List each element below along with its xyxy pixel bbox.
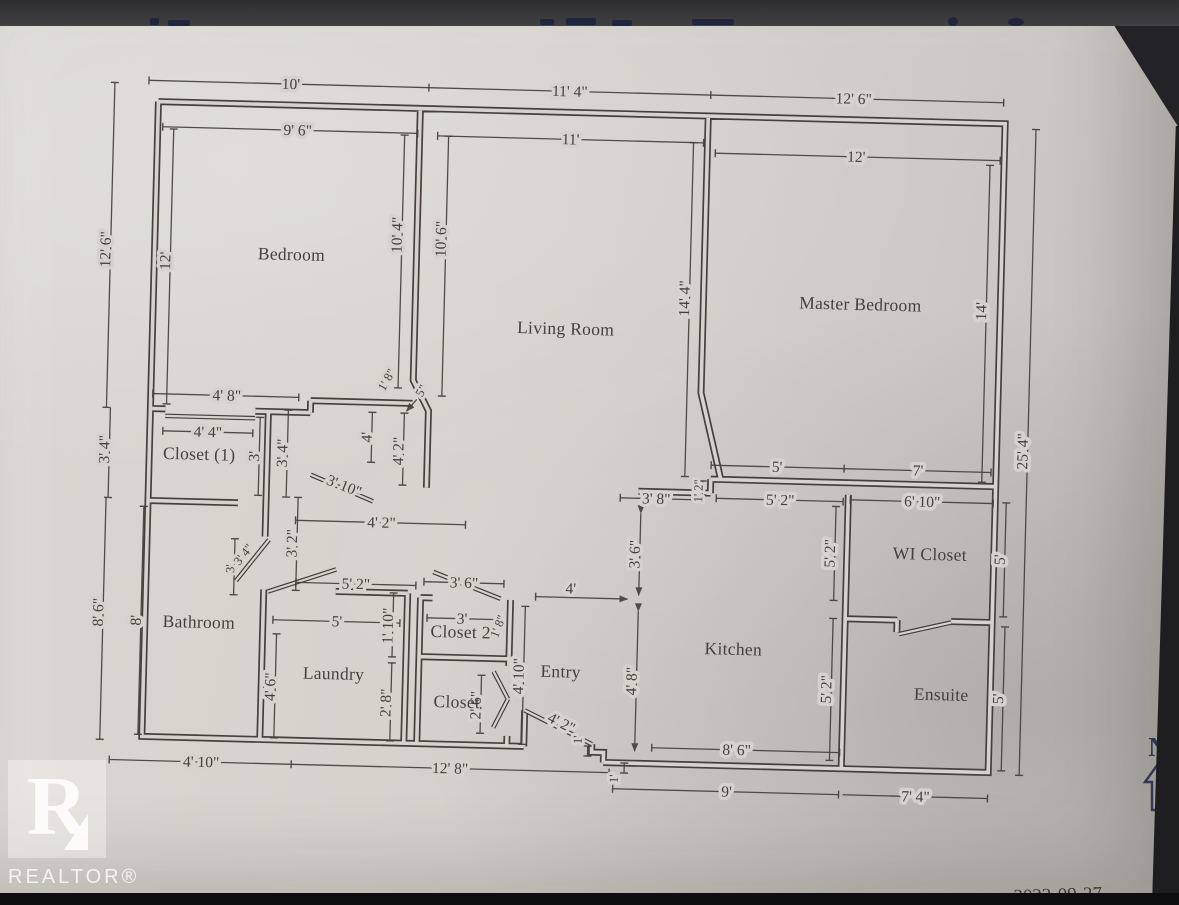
dimension-labels: 10' 11' 4" 12' 6" 9' 6" 11' 12' 12' 6" 3… bbox=[84, 71, 1041, 808]
dim-master-width: 12' bbox=[847, 149, 866, 166]
dim-entry-height: 4' 10" bbox=[510, 658, 528, 695]
cropped-title-fragment bbox=[566, 18, 596, 25]
dim-bathroom-height: 8' bbox=[128, 614, 145, 625]
room-label-closet-2: Closet 2 bbox=[430, 621, 491, 643]
realtor-watermark: R REALTOR® bbox=[8, 760, 118, 889]
floor-plan-tilted-group: 10' 11' 4" 12' 6" 9' 6" 11' 12' 12' 6" 3… bbox=[84, 71, 1041, 808]
room-label-bedroom: Bedroom bbox=[258, 243, 326, 265]
cropped-title-fragment bbox=[1008, 18, 1024, 26]
cropped-title-fragment bbox=[612, 20, 632, 26]
dimension-line bbox=[536, 597, 628, 599]
dim-closet1-door: 4' 4" bbox=[193, 424, 222, 442]
dim-bottom-kitchen: 9' bbox=[721, 784, 732, 801]
dim-kitchen-opening: 3' 8" bbox=[642, 490, 671, 508]
dim-left-mid: 3' 4" bbox=[96, 435, 114, 464]
cropped-title-fragment bbox=[150, 18, 159, 25]
floor-plan-drawing: 10' 11' 4" 12' 6" 9' 6" 11' 12' 12' 6" 3… bbox=[0, 0, 1179, 905]
dim-kitchen-right-lower: 5' 2" bbox=[818, 675, 836, 704]
dim-closet2-opening: 3' 6" bbox=[449, 574, 478, 592]
room-label-living-room: Living Room bbox=[517, 317, 615, 340]
dimension-lines bbox=[97, 79, 1037, 799]
cropped-title-fragment bbox=[168, 20, 190, 26]
dim-ensuite-right: 5' bbox=[990, 693, 1007, 704]
dim-hall-width: 4' 2" bbox=[367, 514, 396, 532]
room-label-bathroom: Bathroom bbox=[162, 611, 235, 633]
photo-crop-bottom-bar bbox=[0, 893, 1179, 905]
realtor-logo: R bbox=[8, 760, 106, 858]
room-label-master-bedroom: Master Bedroom bbox=[799, 292, 922, 315]
dim-hall-top-left: 4' bbox=[359, 431, 376, 442]
dim-living-door-diag: 3' 10" bbox=[324, 472, 364, 501]
realtor-watermark-label: REALTOR® bbox=[8, 866, 118, 889]
dim-laundry-height: 4' 6" bbox=[262, 672, 280, 701]
dim-wi-closet-width: 6' 10" bbox=[904, 493, 941, 511]
dim-bedroom-jog-diag: 1' 8" bbox=[375, 366, 399, 393]
dimension-line bbox=[982, 165, 990, 482]
cropped-title-bar bbox=[0, 0, 1179, 26]
dim-bottom-left: 4' 10" bbox=[183, 753, 220, 771]
dim-living-left-height: 10' 6" bbox=[432, 221, 450, 258]
dim-laundry-wall-upper: 1' 10" bbox=[379, 607, 397, 644]
cropped-title-fragment bbox=[948, 17, 958, 26]
dim-laundry-width: 5' bbox=[331, 613, 342, 630]
room-label-wi-closet: WI Closet bbox=[893, 543, 968, 565]
dim-living-width: 11' bbox=[562, 131, 580, 148]
dim-entry-step-a: 1' bbox=[571, 735, 585, 744]
room-label-entry: Entry bbox=[540, 661, 581, 682]
dim-master-bottom-right: 7' bbox=[913, 462, 924, 479]
dim-kitchen-left-upper: 3' 6" bbox=[626, 540, 644, 569]
dim-right-total: 25' 4" bbox=[1014, 433, 1032, 470]
dim-master-bottom-left: 5' bbox=[772, 459, 783, 476]
dim-bottom-mid: 12' 8" bbox=[432, 760, 469, 778]
dim-bottom-right: 7' 4" bbox=[901, 788, 930, 806]
dim-kitchen-top: 5' 2" bbox=[766, 492, 795, 510]
room-label-ensuite: Ensuite bbox=[914, 684, 969, 705]
dim-top-section-right: 12' 6" bbox=[835, 90, 872, 108]
dim-left-bottom: 8' 6" bbox=[90, 598, 108, 627]
dim-kitchen-left-lower: 4' 8" bbox=[623, 667, 641, 696]
dim-wi-closet-right: 5' bbox=[992, 554, 1009, 565]
room-label-closet-1: Closet (1) bbox=[163, 443, 236, 465]
dim-closet1-right: 3' 4" bbox=[274, 438, 292, 467]
dim-kitchen-right-upper: 5' 2" bbox=[821, 539, 839, 568]
dimension-line bbox=[442, 136, 449, 396]
dim-master-right-height: 14' bbox=[973, 302, 990, 321]
dim-entry-step-b: 1' bbox=[607, 774, 621, 783]
dim-top-section-left: 10' bbox=[282, 76, 301, 93]
dim-top-section-mid: 11' 4" bbox=[552, 83, 588, 101]
room-label-closet: Closet bbox=[433, 691, 480, 712]
dim-bedroom-right-height: 10' 4" bbox=[389, 217, 407, 254]
dim-kitchen-jog: 1' 2" bbox=[691, 479, 706, 502]
dim-living-right-height: 14' 4" bbox=[676, 280, 694, 317]
room-label-laundry: Laundry bbox=[303, 663, 365, 685]
dim-bath-door-width: 3' bbox=[223, 564, 237, 573]
dim-closet1-opening: 4' 8" bbox=[212, 387, 241, 405]
dim-bedroom-height: 12' bbox=[157, 251, 174, 270]
cropped-title-fragment bbox=[692, 19, 734, 25]
cropped-title-fragment bbox=[540, 19, 554, 25]
dim-laundry-door: 5' 2" bbox=[341, 576, 370, 594]
dim-closet1-depth: 3' bbox=[246, 451, 263, 462]
floor-plan-photo: 10' 11' 4" 12' 6" 9' 6" 11' 12' 12' 6" 3… bbox=[0, 0, 1179, 905]
dim-hall-top-right: 4' 2" bbox=[390, 437, 408, 466]
dim-laundry-wall-lower: 2' 8" bbox=[377, 688, 395, 717]
room-label-kitchen: Kitchen bbox=[704, 638, 762, 659]
dim-hall-height: 3' 2" bbox=[284, 529, 302, 558]
realtor-r-leg-icon bbox=[64, 814, 88, 850]
dim-left-top: 12' 6" bbox=[97, 231, 115, 268]
dimension-line bbox=[398, 135, 405, 388]
dim-entry-width: 4' bbox=[565, 580, 576, 597]
dim-bedroom-width: 9' 6" bbox=[283, 122, 312, 140]
dim-kitchen-bottom: 8' 6" bbox=[722, 742, 751, 760]
